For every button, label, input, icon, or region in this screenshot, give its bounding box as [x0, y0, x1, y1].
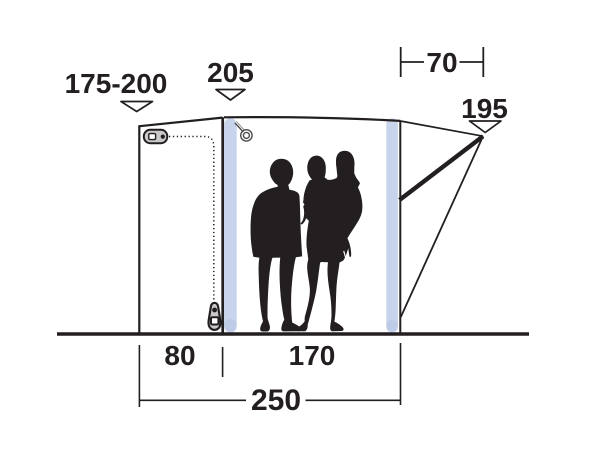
svg-text:205: 205 [207, 57, 254, 88]
svg-text:195: 195 [461, 93, 508, 124]
svg-text:70: 70 [426, 47, 457, 78]
svg-text:80: 80 [164, 340, 195, 371]
svg-text:250: 250 [251, 384, 301, 417]
svg-text:175-200: 175-200 [65, 68, 168, 99]
svg-text:170: 170 [289, 340, 336, 371]
